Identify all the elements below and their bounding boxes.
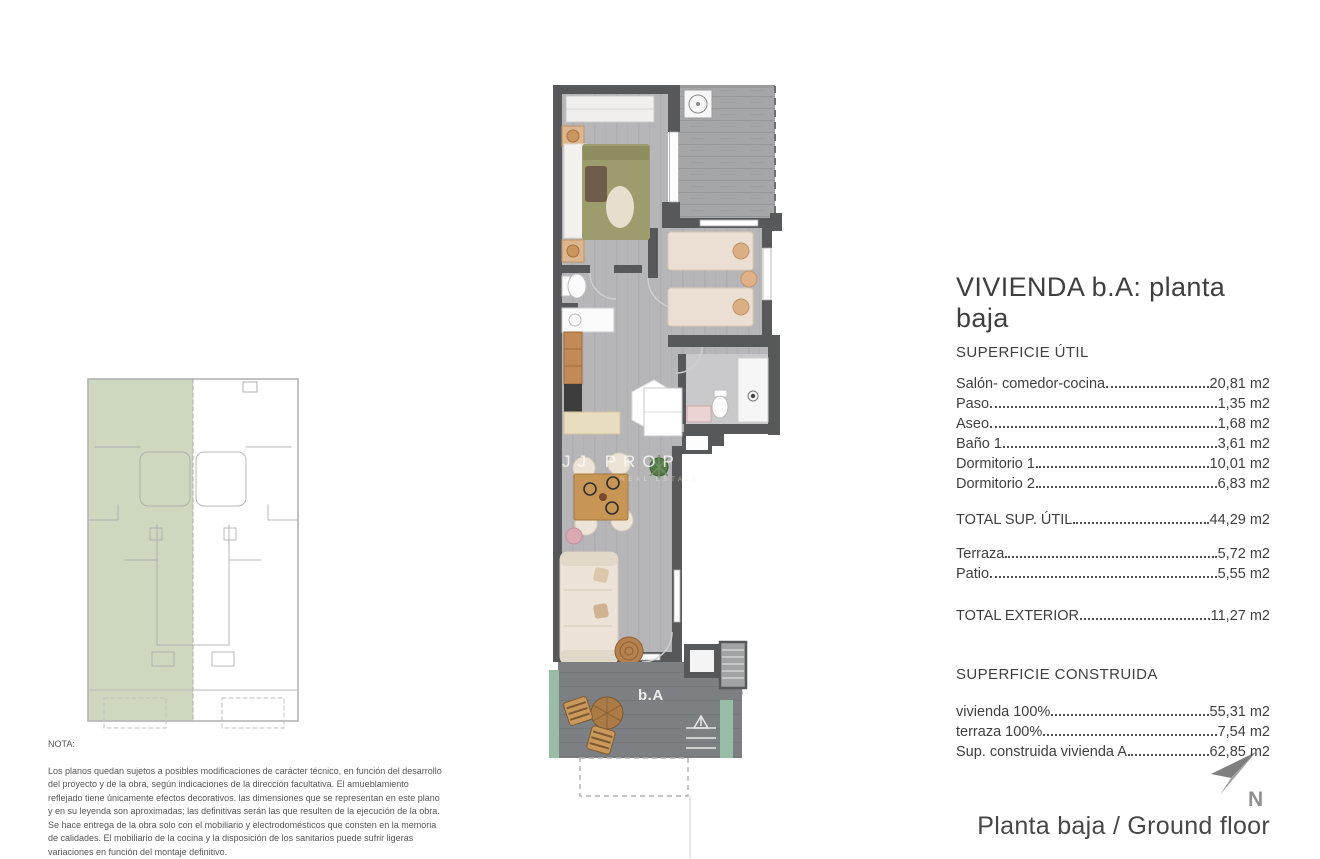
- washbasin: [687, 406, 711, 422]
- coffee-table: [615, 637, 643, 665]
- greenery-strip: [549, 670, 559, 758]
- area-row: Baño 1 3,61 m2: [956, 436, 1270, 456]
- area-value: 6,83 m2: [1218, 476, 1270, 492]
- dot-leader: [1003, 446, 1217, 448]
- total-util-row: TOTAL SUP. ÚTIL 44,29 m2: [956, 512, 1270, 532]
- sheet-caption: Planta baja / Ground floor: [950, 812, 1270, 841]
- total-exterior-row: TOTAL EXTERIOR 11,27 m2: [956, 608, 1270, 628]
- terrace: b.A: [549, 642, 746, 858]
- area-row: vivienda 100% 55,31 m2: [956, 704, 1270, 724]
- dot-leader: [990, 576, 1217, 578]
- area-label: Dormitorio 2: [956, 476, 1035, 492]
- note-block: NOTA: Los planos quedan sujetos a posibl…: [48, 738, 442, 859]
- area-value: 1,68 m2: [1218, 416, 1270, 432]
- area-value: 7,54 m2: [1218, 724, 1270, 740]
- bed-pillow: [585, 166, 607, 202]
- measurements-panel: VIVIENDA b.A: planta baja SUPERFICIE ÚTI…: [956, 272, 1270, 764]
- area-value: 11,27 m2: [1211, 608, 1270, 624]
- stool: [566, 528, 582, 544]
- toilet: [712, 396, 728, 418]
- patio: [672, 85, 775, 220]
- area-row: Salón- comedor-cocina 20,81 m2: [956, 376, 1270, 396]
- bed-pillow: [733, 299, 749, 315]
- sofa: [560, 552, 618, 664]
- area-row: Aseo 1,68 m2: [956, 416, 1270, 436]
- area-label: Baño 1: [956, 436, 1002, 452]
- key-plan: [88, 379, 298, 728]
- dot-leader: [1036, 486, 1217, 488]
- kitchen-counter: [562, 308, 614, 332]
- dot-leader: [1106, 386, 1208, 388]
- watermark-text: JJ PROPER: [562, 452, 719, 471]
- area-value: 55,31 m2: [1210, 704, 1270, 720]
- table-centerpiece: [599, 493, 607, 501]
- area-value: 1,35 m2: [1218, 396, 1270, 412]
- sofa-cushion: [593, 567, 610, 584]
- area-label: Dormitorio 1: [956, 456, 1035, 472]
- area-row: Terraza 5,72 m2: [956, 546, 1270, 566]
- dot-leader: [1128, 754, 1209, 756]
- unit-label: b.A: [638, 687, 664, 704]
- kitchen-cabinet: [564, 332, 582, 384]
- terrace-projection-dashed: [580, 758, 688, 796]
- kitchen-island: [564, 412, 620, 434]
- note-heading: NOTA:: [48, 738, 442, 752]
- area-label: TOTAL SUP. ÚTIL: [956, 512, 1072, 528]
- area-label: Salón- comedor-cocina: [956, 376, 1105, 392]
- bed-pillow: [733, 243, 749, 259]
- north-label: N: [1248, 788, 1263, 811]
- louvred-unit: [720, 642, 746, 688]
- area-row: Paso 1,35 m2: [956, 396, 1270, 416]
- area-label: vivienda 100%: [956, 704, 1050, 720]
- sofa-cushion: [593, 603, 609, 619]
- dot-leader: [1080, 618, 1210, 620]
- area-label: Sup. construida vivienda A: [956, 744, 1127, 760]
- area-label: Aseo: [956, 416, 989, 432]
- dot-leader: [1073, 522, 1208, 524]
- area-row: Patio 5,55 m2: [956, 566, 1270, 586]
- aseo-fixtures: [562, 274, 586, 298]
- greenery-strip: [720, 700, 733, 758]
- dot-leader: [990, 406, 1217, 408]
- dot-leader: [1043, 734, 1216, 736]
- area-value: 5,72 m2: [1218, 546, 1270, 562]
- area-value: 62,85 m2: [1210, 744, 1270, 760]
- main-floor-plan: b.A JJ PROPER REAL ESTATE: [549, 85, 782, 858]
- dormitorio1-furniture: [562, 96, 654, 262]
- area-label: TOTAL EXTERIOR: [956, 608, 1079, 624]
- shower: [738, 358, 768, 422]
- area-value: 10,01 m2: [1210, 456, 1270, 472]
- area-value: 20,81 m2: [1210, 376, 1270, 392]
- watermark-subtext: REAL ESTATE: [620, 476, 700, 483]
- dot-leader: [1005, 556, 1216, 558]
- area-label: Terraza: [956, 546, 1004, 562]
- key-plan-highlighted-unit: [88, 379, 193, 721]
- dot-leader: [1051, 714, 1208, 716]
- section-heading-util: SUPERFICIE ÚTIL: [956, 344, 1270, 361]
- area-row: terraza 100% 7,54 m2: [956, 724, 1270, 744]
- area-label: Paso: [956, 396, 989, 412]
- area-label: Patio: [956, 566, 989, 582]
- area-label: terraza 100%: [956, 724, 1042, 740]
- area-value: 3,61 m2: [1218, 436, 1270, 452]
- section-heading-construida: SUPERFICIE CONSTRUIDA: [956, 666, 1270, 683]
- area-value: 44,29 m2: [1210, 512, 1270, 528]
- dot-leader: [1036, 466, 1209, 468]
- note-body: Los planos quedan sujetos a posibles mod…: [48, 765, 442, 859]
- area-row: Dormitorio 2 6,83 m2: [956, 476, 1270, 496]
- dot-leader: [990, 426, 1217, 428]
- toilet: [568, 274, 586, 298]
- nightstand: [741, 271, 757, 287]
- area-value: 5,55 m2: [1218, 566, 1270, 582]
- page-title: VIVIENDA b.A: planta baja: [956, 272, 1270, 334]
- bed-throw: [606, 186, 634, 228]
- area-row: Sup. construida vivienda A 62,85 m2: [956, 744, 1270, 764]
- area-row: Dormitorio 1 10,01 m2: [956, 456, 1270, 476]
- oven: [564, 384, 582, 412]
